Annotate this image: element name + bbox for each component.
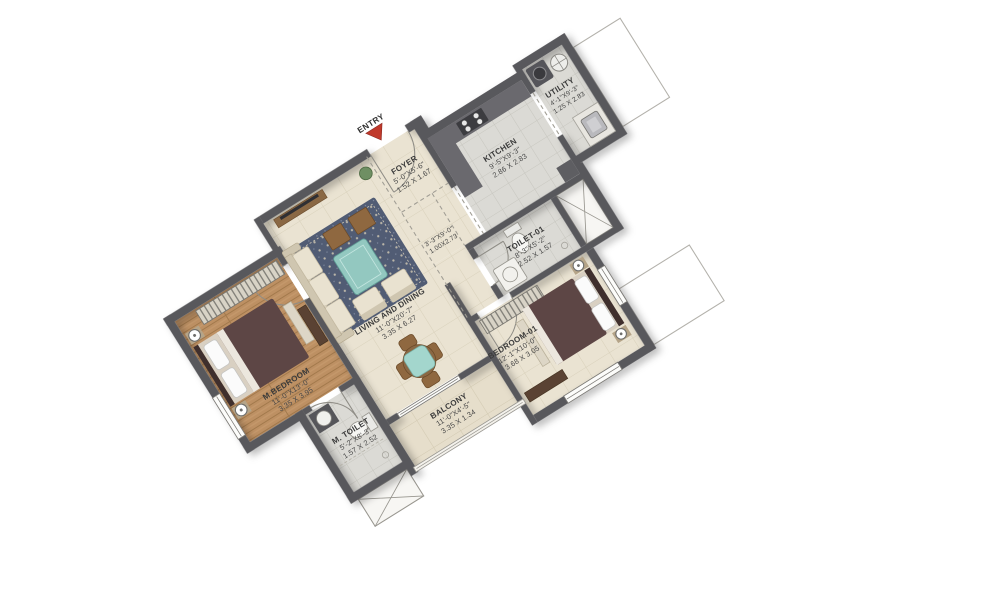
floor-plan: ENTRY FOYER 5'-0"X5'-6" 1.52 X 1.67 KITC… xyxy=(0,0,1000,600)
entry-marker: ENTRY xyxy=(356,112,394,148)
floor-plan-page: ENTRY FOYER 5'-0"X5'-6" 1.52 X 1.67 KITC… xyxy=(0,0,1000,600)
